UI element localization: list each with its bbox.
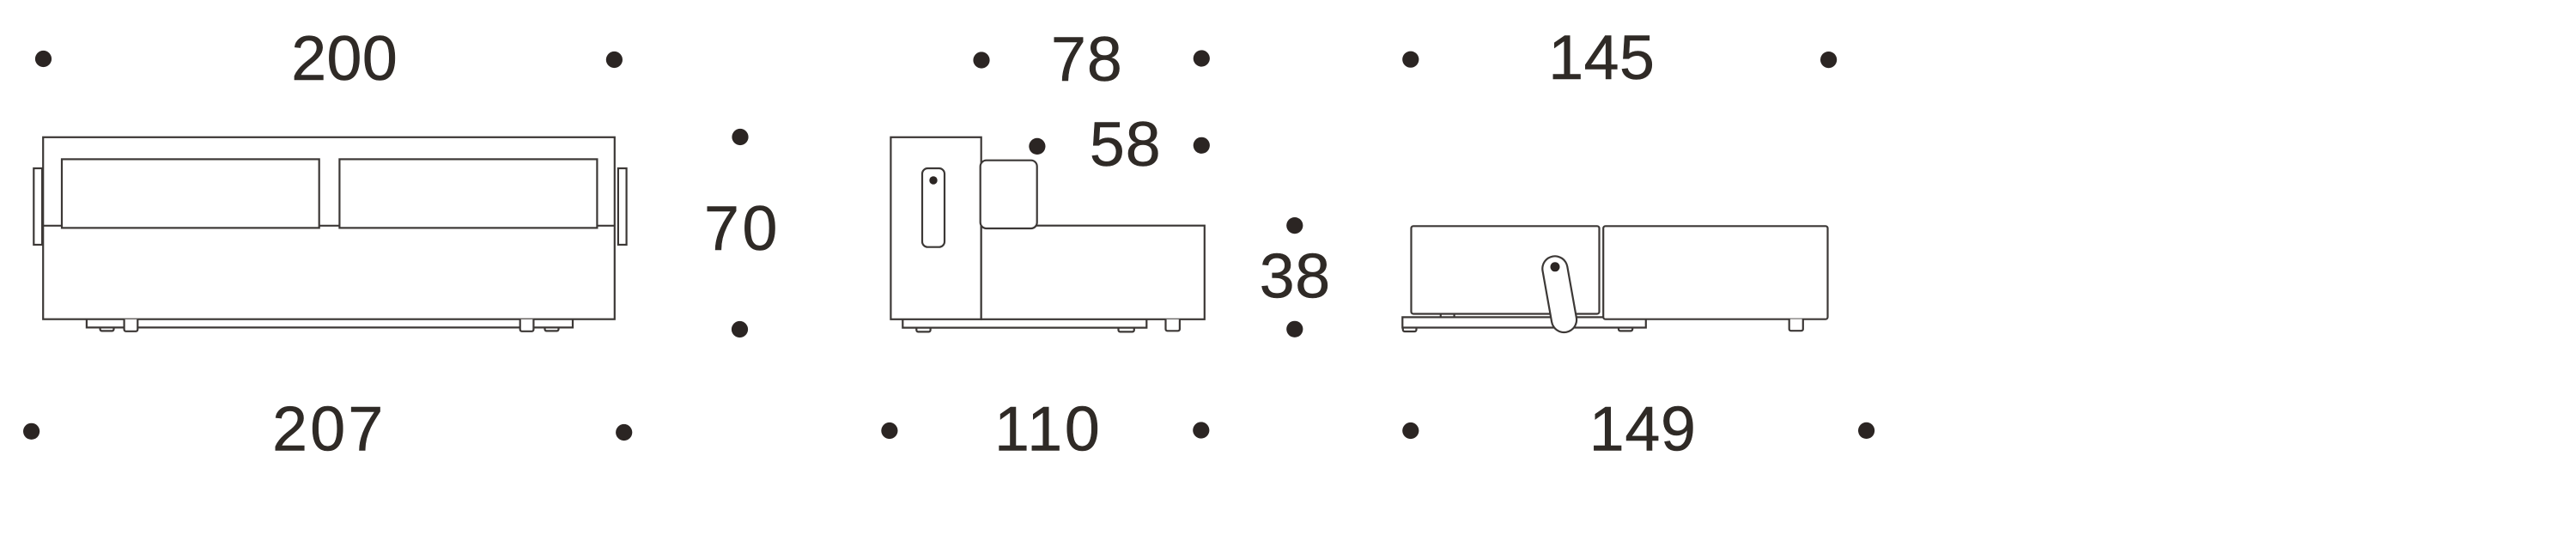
svg-text:38: 38 [1260,240,1330,312]
svg-text:78: 78 [1051,23,1122,94]
svg-text:58: 58 [1090,108,1161,179]
svg-text:200: 200 [291,22,398,94]
svg-text:149: 149 [1589,393,1696,465]
svg-text:110: 110 [994,392,1100,464]
svg-text:207: 207 [272,393,383,465]
svg-text:145: 145 [1548,21,1655,93]
